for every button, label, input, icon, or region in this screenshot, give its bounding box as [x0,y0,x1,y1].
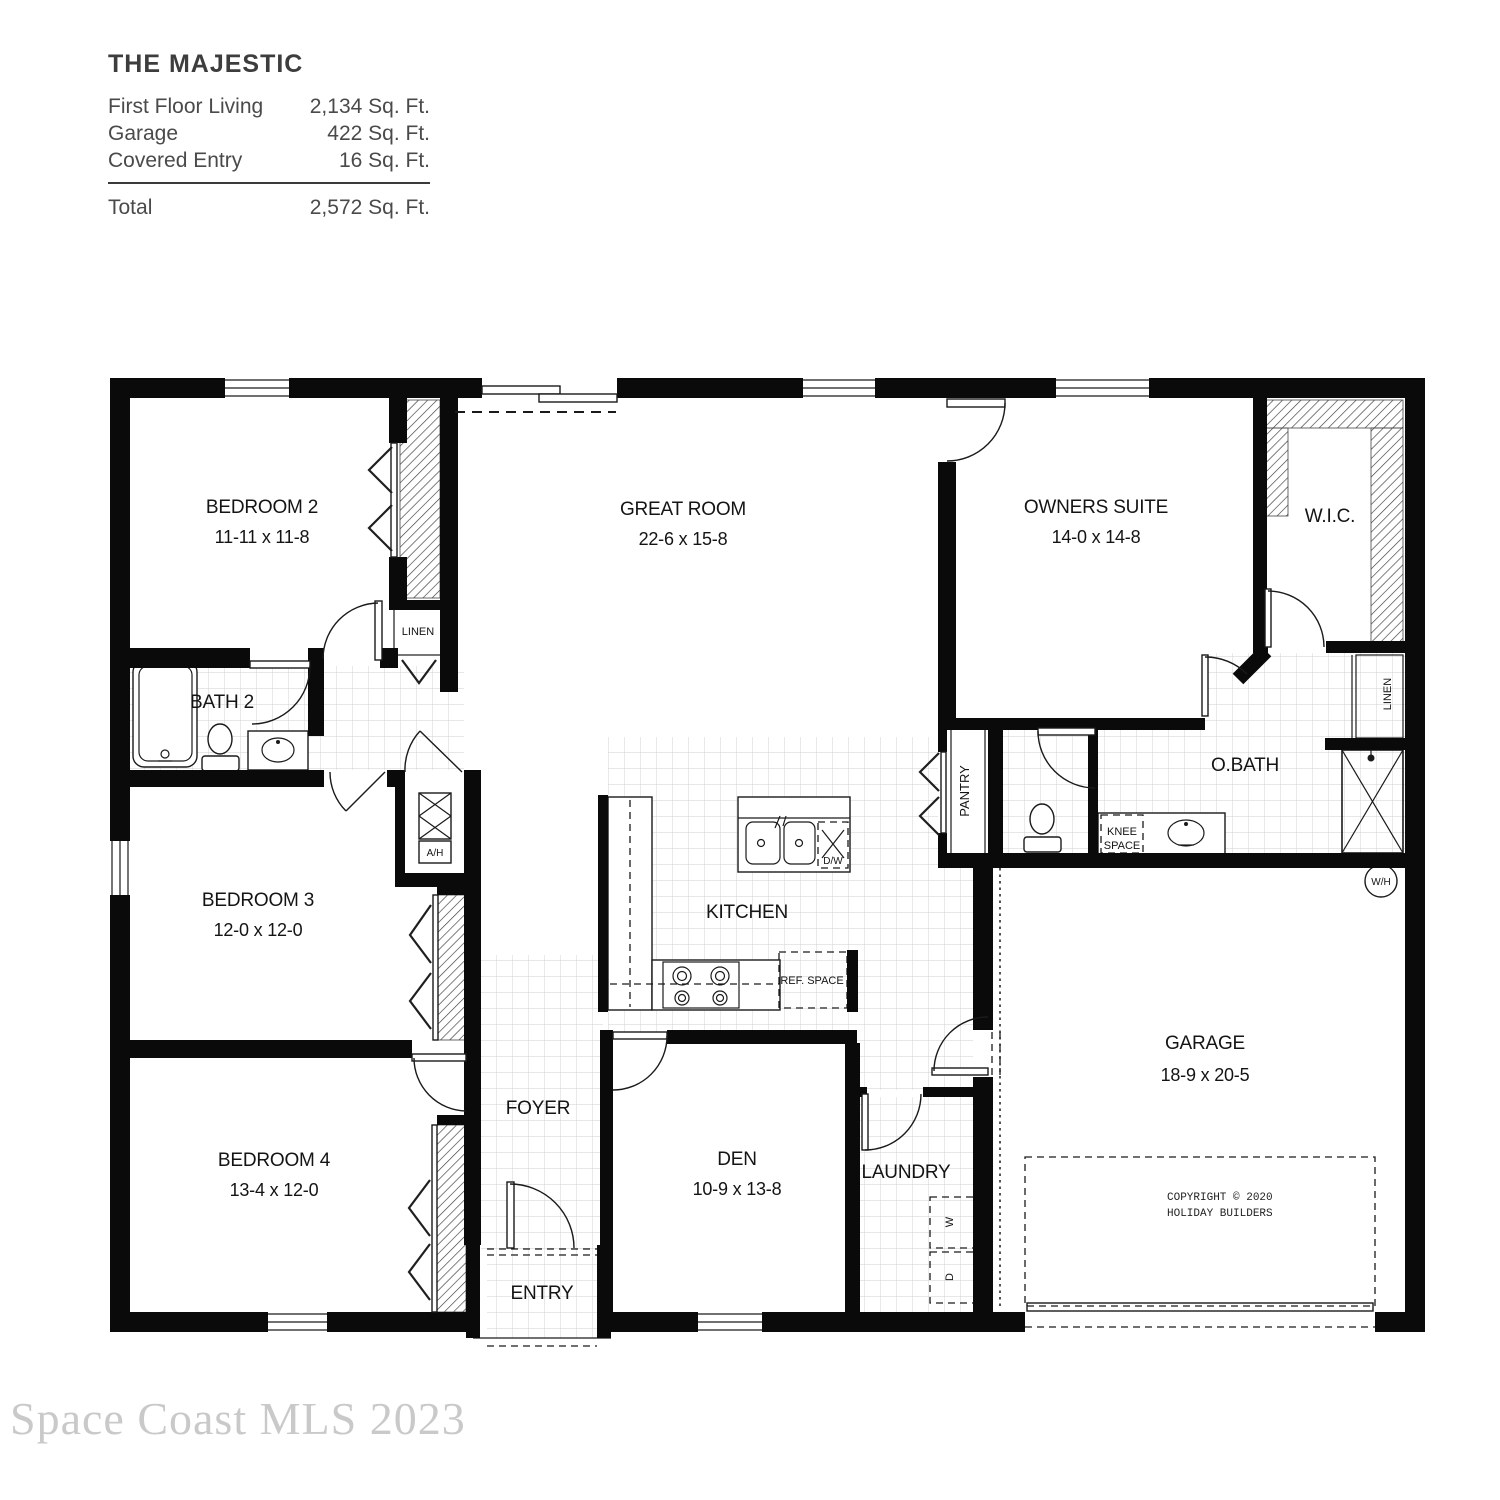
label-washer: W [944,1216,956,1227]
page: THE MAJESTIC First Floor Living 2,134 Sq… [0,0,1500,1500]
vanity-bath2 [248,731,308,770]
room-label-kitchen: KITCHEN [706,902,788,923]
window-den [695,1312,765,1332]
door-bedroom2 [323,601,382,660]
window-bedroom2 [222,378,292,398]
room-label-wic: W.I.C. [1305,506,1356,527]
room-label-bedroom4: BEDROOM 4 [218,1150,331,1171]
room-dims-owners-suite: 14-0 x 14-8 [1052,527,1141,547]
room-dims-bedroom2: 11-11 x 11-8 [215,527,310,547]
kitchen-counter-left [608,797,652,1010]
mls-watermark: Space Coast MLS 2023 [10,1392,466,1445]
entry-porch-edge [473,1338,611,1346]
floor-plan: BEDROOM 2 11-11 x 11-8 GREAT ROOM 22-6 x… [0,0,1500,1500]
label-linen-hall: LINEN [402,626,434,638]
label-knee-space-1: KNEE [1107,826,1137,838]
label-linen-suite: LINEN [1382,678,1394,710]
door-bedroom4 [412,1054,466,1111]
room-label-entry: ENTRY [510,1283,574,1304]
room-label-owners-suite: OWNERS SUITE [1024,497,1168,518]
door-bedroom3 [330,772,385,811]
label-water-heater: W/H [1371,877,1390,888]
bifold-bedroom4-closet [409,1125,437,1312]
room-label-den: DEN [717,1149,757,1170]
room-label-garage: GARAGE [1165,1033,1245,1054]
window-bedroom4 [265,1312,330,1332]
door-den [613,1032,667,1090]
copyright-line2: HOLIDAY BUILDERS [1167,1208,1273,1220]
bifold-bedroom3-closet [410,895,438,1040]
door-owners-suite [947,399,1005,461]
room-label-foyer: FOYER [506,1098,570,1119]
room-dims-bedroom3: 12-0 x 12-0 [214,920,303,940]
room-label-bath2: BATH 2 [190,692,254,713]
door-wic [1265,589,1324,647]
label-pantry: PANTRY [957,765,972,817]
room-label-laundry: LAUNDRY [861,1162,951,1183]
room-dims-great-room: 22-6 x 15-8 [639,529,728,549]
room-dims-den: 10-9 x 13-8 [693,1179,782,1199]
garage-interior-lines [995,866,1405,1310]
room-label-bedroom2: BEDROOM 2 [206,497,318,518]
window-bedroom3 [110,838,130,898]
room-dims-bedroom4: 13-4 x 12-0 [230,1180,319,1200]
copyright-line1: COPYRIGHT © 2020 [1167,1192,1273,1204]
window-great-room [800,378,878,398]
garage-door [1025,1157,1375,1332]
room-dims-garage: 18-9 x 20-5 [1161,1065,1250,1085]
room-label-great-room: GREAT ROOM [620,499,746,520]
label-dishwasher: D/W [823,856,843,867]
room-label-bedroom3: BEDROOM 3 [202,890,314,911]
label-dryer: D [944,1273,956,1281]
bifold-bedroom2-closet [369,443,397,557]
room-label-obath: O.BATH [1211,755,1279,776]
window-owners-suite [1053,378,1152,398]
label-ref-space: REF. SPACE [780,975,843,987]
bathtub [133,661,197,767]
label-air-handler: A/H [427,848,444,859]
label-knee-space-2: SPACE [1104,840,1140,852]
